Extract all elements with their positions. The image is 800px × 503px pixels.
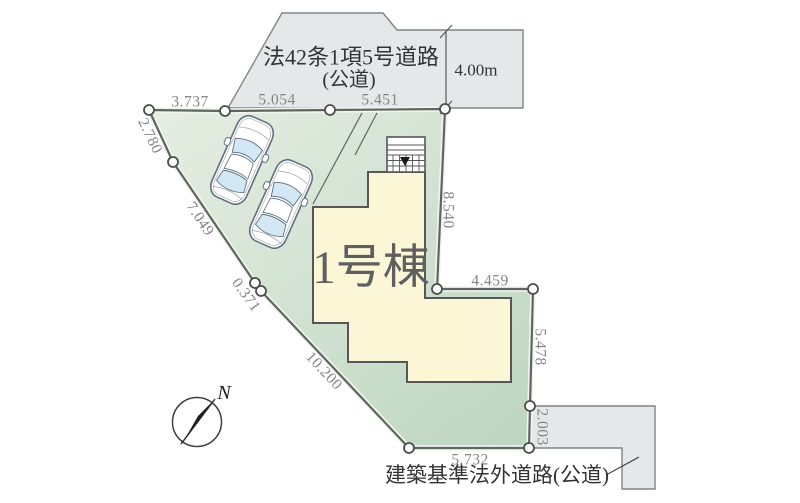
entrance-porch — [387, 137, 425, 172]
dimension-label-n2: 5.451 — [361, 92, 398, 109]
dimension-label-nw: 3.737 — [171, 94, 208, 111]
vertex-marker — [440, 104, 450, 114]
vertex-marker — [250, 278, 260, 288]
road-width-label: 4.00m — [455, 61, 498, 80]
bottom-road-label: 建築基準法外道路(公道) — [385, 463, 609, 487]
vertex-marker — [220, 106, 230, 116]
building-label: 1号棟 — [312, 242, 430, 294]
top-road-label-line2: (公道) — [322, 68, 375, 91]
top-road-label-line1: 法42条1項5号道路 — [263, 45, 439, 70]
vertex-marker — [325, 105, 335, 115]
compass: N — [173, 382, 233, 447]
compass-north-label: N — [216, 382, 232, 404]
dimension-label-e2: 4.459 — [471, 273, 508, 290]
dimension-label-e1: 8.540 — [440, 191, 457, 228]
vertex-marker — [404, 443, 414, 453]
vertex-marker — [528, 284, 538, 294]
dimension-label-n1: 5.054 — [258, 92, 295, 109]
vertex-marker — [432, 284, 442, 294]
vertex-marker — [168, 157, 178, 167]
site-plan: 1号棟 N 3.737 5.054 5.451 2.780 7.049 0.37… — [0, 0, 800, 503]
dimension-label-e4: 2.003 — [534, 408, 551, 445]
site-plan-svg: 1号棟 N 3.737 5.054 5.451 2.780 7.049 0.37… — [0, 0, 800, 503]
vertex-marker — [144, 105, 154, 115]
dimension-label-e3: 5.478 — [532, 328, 549, 365]
vertex-marker — [525, 401, 535, 411]
vertex-marker — [524, 443, 534, 453]
